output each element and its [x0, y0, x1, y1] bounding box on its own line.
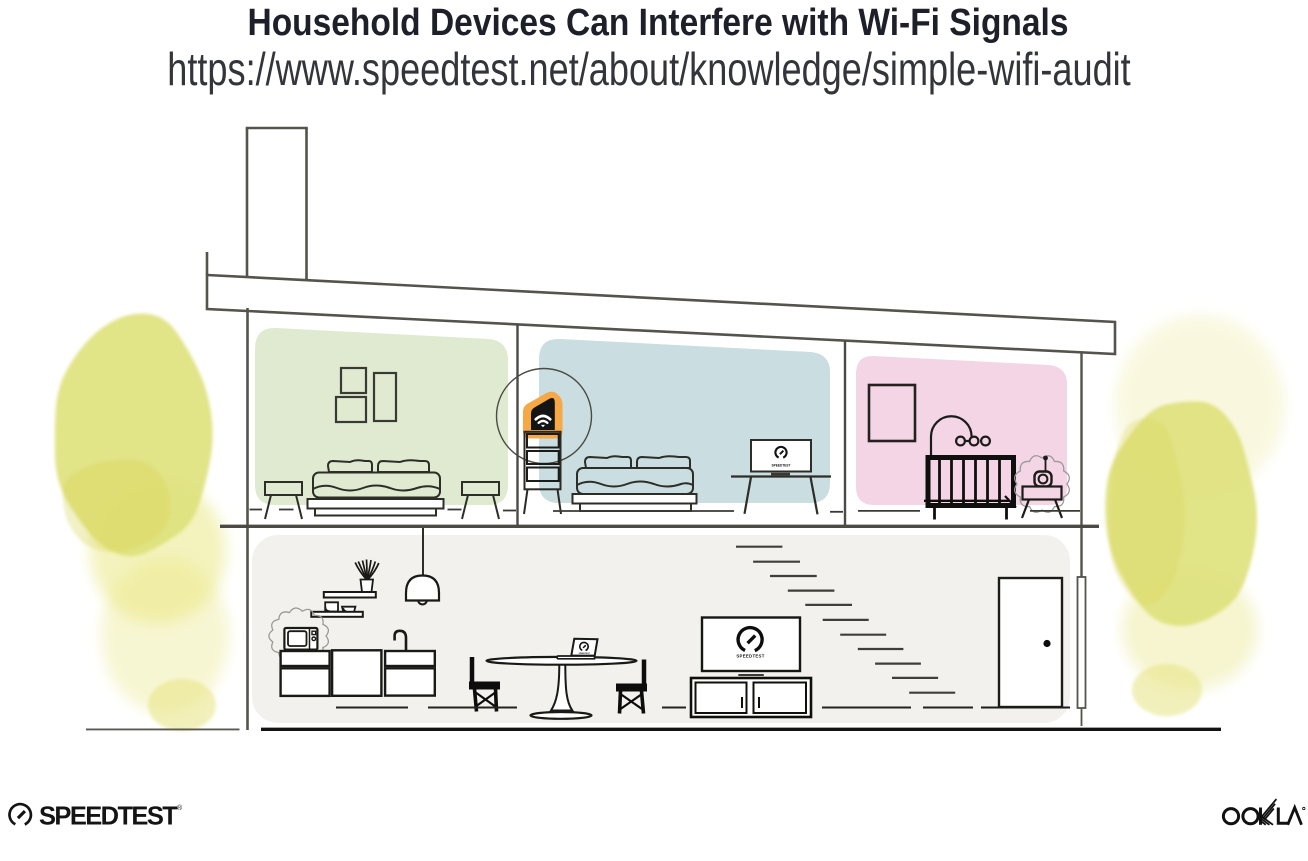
svg-text:®: ® — [177, 804, 183, 812]
svg-text:SPEEDTEST: SPEEDTEST — [772, 464, 791, 468]
svg-text:SPEEDTEST: SPEEDTEST — [579, 653, 591, 655]
svg-text:SPEEDTEST: SPEEDTEST — [736, 654, 764, 659]
svg-text:SPEEDTEST: SPEEDTEST — [39, 803, 178, 831]
